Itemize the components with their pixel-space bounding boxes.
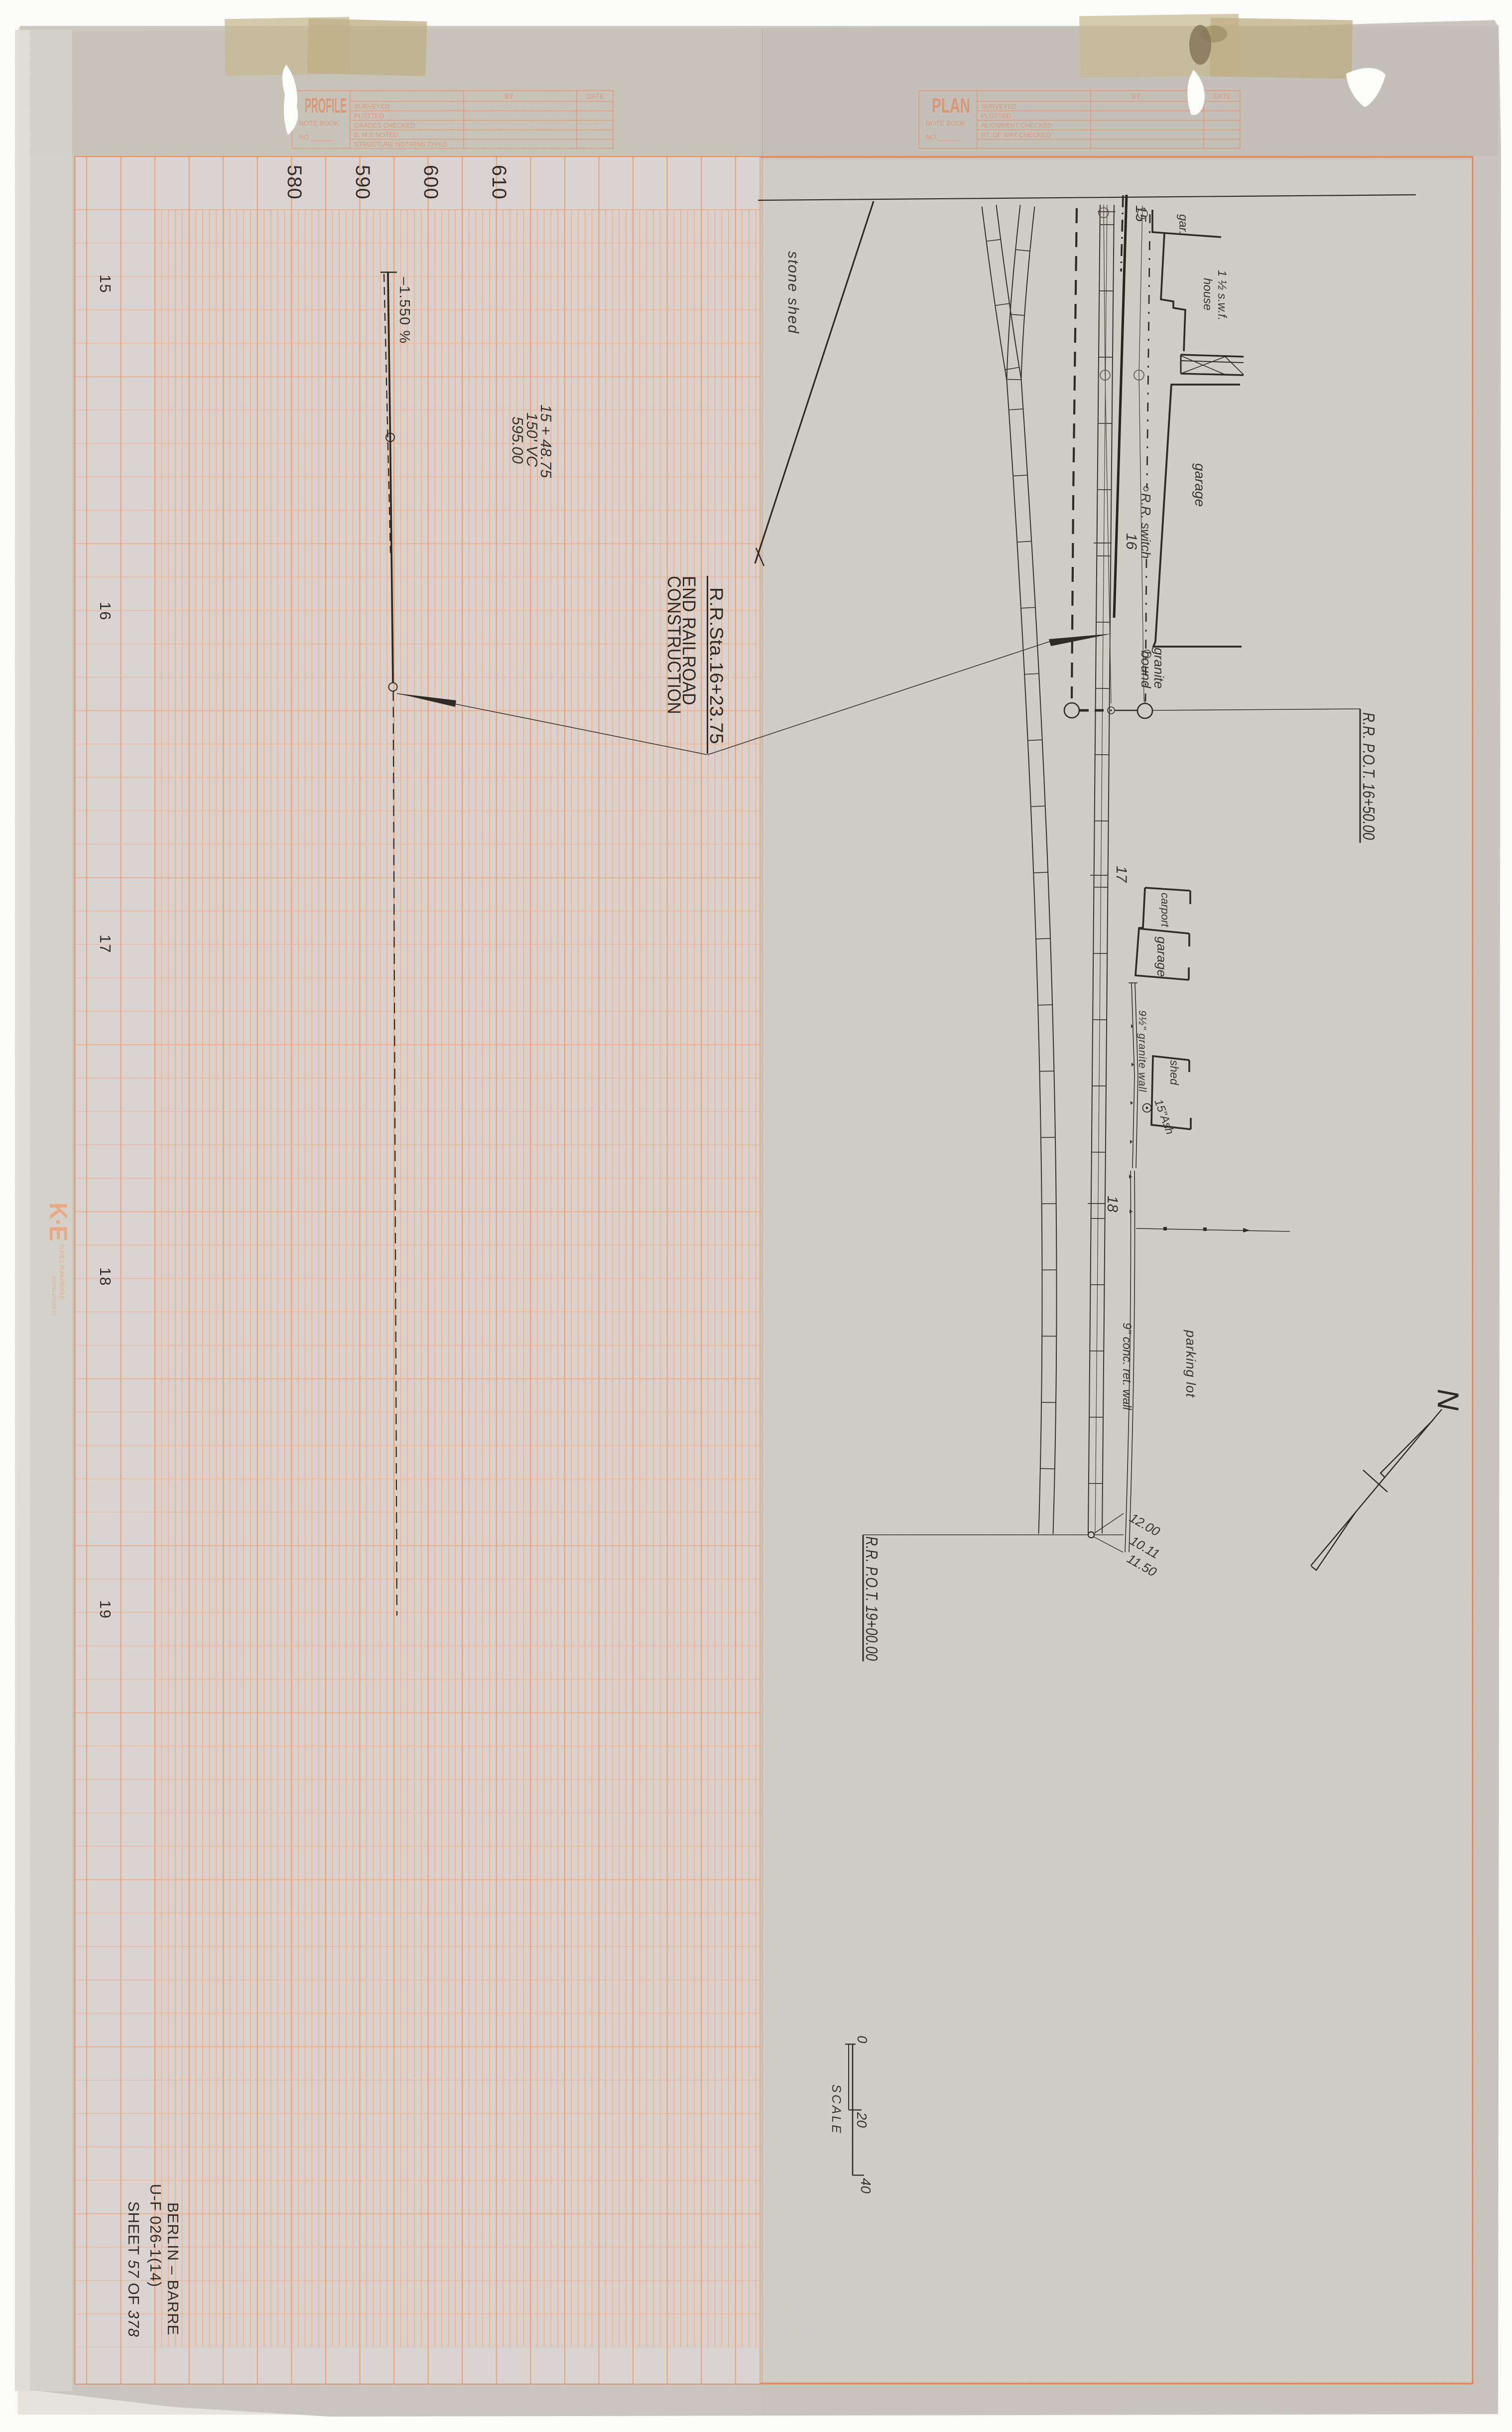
svg-text:BY: BY <box>1132 93 1140 100</box>
svg-text:N: N <box>1431 1389 1465 1411</box>
svg-text:16: 16 <box>1123 533 1139 550</box>
svg-text:bound: bound <box>1138 651 1153 688</box>
svg-text:B. M.S NOTED: B. M.S NOTED <box>354 131 398 138</box>
svg-text:NOTE BOOK: NOTE BOOK <box>926 120 966 127</box>
svg-text:BERLIN – BARRE: BERLIN – BARRE <box>164 2202 182 2335</box>
svg-text:parking lot: parking lot <box>1183 1330 1198 1398</box>
svg-text:–1.550 %: –1.550 % <box>396 277 412 344</box>
svg-text:U-F 026-1(14): U-F 026-1(14) <box>147 2184 164 2288</box>
svg-text:0: 0 <box>855 2035 870 2043</box>
svg-text:R.R. switch: R.R. switch <box>1138 493 1153 558</box>
svg-text:PLOTTED: PLOTTED <box>981 112 1011 120</box>
svg-text:SURVEYED: SURVEYED <box>354 103 389 110</box>
svg-text:40: 40 <box>858 2178 874 2194</box>
svg-text:17: 17 <box>1113 866 1130 883</box>
svg-text:590: 590 <box>352 165 374 200</box>
svg-text:19: 19 <box>97 1600 114 1619</box>
svg-text:15: 15 <box>97 274 114 293</box>
svg-text:DATE: DATE <box>587 93 604 100</box>
svg-text:STRUCTURE NOTATNS CH'KD: STRUCTURE NOTATNS CH'KD <box>354 140 447 148</box>
svg-text:PROFILE: PROFILE <box>305 94 347 117</box>
svg-text:SURVEYED: SURVEYED <box>981 103 1016 110</box>
svg-text:RT. OF WAY CHECKED: RT. OF WAY CHECKED <box>981 131 1051 138</box>
svg-text:20: 20 <box>854 2112 870 2128</box>
svg-text:SHEET 57 OF 378: SHEET 57 OF 378 <box>125 2201 142 2337</box>
svg-text:15: 15 <box>1133 205 1149 222</box>
svg-text:PLOTTED: PLOTTED <box>354 112 384 120</box>
svg-text:ALIGNMENT CHECKED: ALIGNMENT CHECKED <box>981 122 1052 129</box>
svg-text:R.R. P.O.T. 19+00.00: R.R. P.O.T. 19+00.00 <box>863 1536 881 1661</box>
svg-text:600: 600 <box>420 165 442 200</box>
svg-text:9" conc. ret. wall: 9" conc. ret. wall <box>1120 1323 1134 1410</box>
svg-text:gar.: gar. <box>1176 214 1190 234</box>
svg-text:PLATE 1, PLAN-PROFILE: PLATE 1, PLAN-PROFILE <box>58 1244 65 1299</box>
svg-text:1 ½ s.w.f.: 1 ½ s.w.f. <box>1215 270 1229 320</box>
svg-text:shed: shed <box>1168 1060 1181 1085</box>
svg-text:GRADES CHECKED: GRADES CHECKED <box>354 122 415 129</box>
svg-text:BY: BY <box>504 93 513 100</box>
svg-text:NO.______: NO.______ <box>299 134 334 141</box>
svg-text:KEUFFEL & ESSER CO.: KEUFFEL & ESSER CO. <box>51 1276 56 1316</box>
svg-text:carport: carport <box>1159 893 1171 927</box>
svg-text:580: 580 <box>283 165 305 200</box>
svg-text:NOTE BOOK: NOTE BOOK <box>299 120 339 127</box>
svg-text:16: 16 <box>97 602 114 621</box>
svg-text:R.R. P.O.T. 16+50.00: R.R. P.O.T. 16+50.00 <box>1360 712 1378 840</box>
svg-text:SCALE: SCALE <box>829 2084 843 2135</box>
svg-text:595.00: 595.00 <box>509 416 526 464</box>
svg-text:CONSTRUCTION: CONSTRUCTION <box>664 576 684 714</box>
svg-text:stone shed: stone shed <box>785 251 801 334</box>
svg-text:610: 610 <box>488 165 510 200</box>
svg-text:PLAN: PLAN <box>932 94 970 117</box>
svg-text:R.R.Sta.16+23.75: R.R.Sta.16+23.75 <box>706 587 727 744</box>
svg-text:DATE: DATE <box>1214 93 1231 100</box>
svg-text:9½" granite wall: 9½" granite wall <box>1136 1010 1148 1092</box>
svg-text:house: house <box>1201 278 1214 310</box>
svg-text:17: 17 <box>97 935 114 953</box>
svg-text:garage: garage <box>1192 463 1208 507</box>
svg-text:NO.______: NO.______ <box>926 134 961 141</box>
svg-text:K·E: K·E <box>44 1203 72 1241</box>
svg-text:18: 18 <box>1104 1196 1121 1213</box>
svg-text:18: 18 <box>97 1267 114 1286</box>
svg-text:garage: garage <box>1154 937 1169 977</box>
